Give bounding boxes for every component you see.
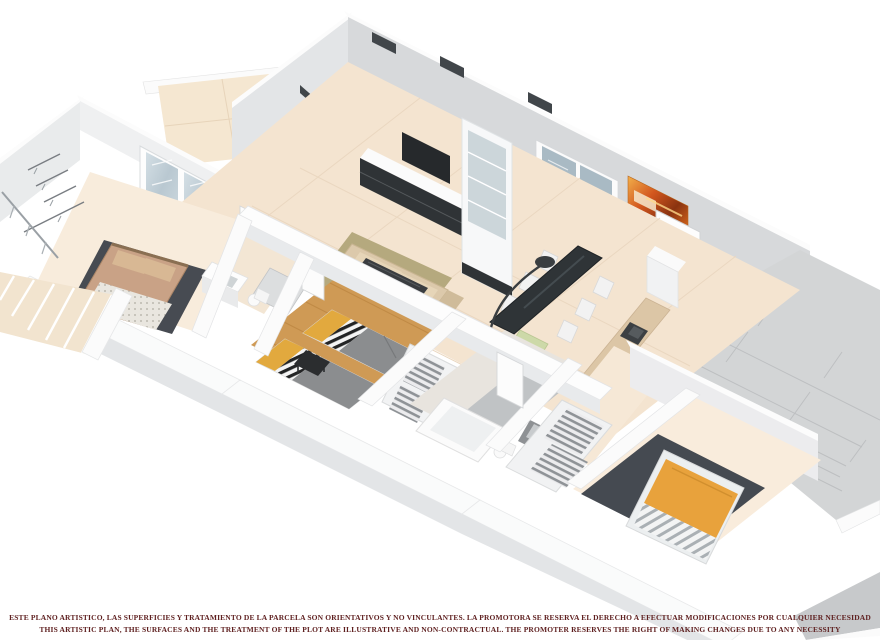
disclaimer-line-es: ESTE PLANO ARTISTICO, LAS SUPERFICIES Y …: [0, 612, 880, 624]
railing-balusters: [10, 206, 46, 254]
isometric-plan: [0, 0, 880, 640]
floor-plan-render: ESTE PLANO ARTISTICO, LAS SUPERFICIES Y …: [0, 0, 880, 640]
disclaimer: ESTE PLANO ARTISTICO, LAS SUPERFICIES Y …: [0, 612, 880, 636]
bookcase: [462, 118, 512, 298]
disclaimer-line-en: THIS ARTISTIC PLAN, THE SURFACES AND THE…: [0, 624, 880, 636]
